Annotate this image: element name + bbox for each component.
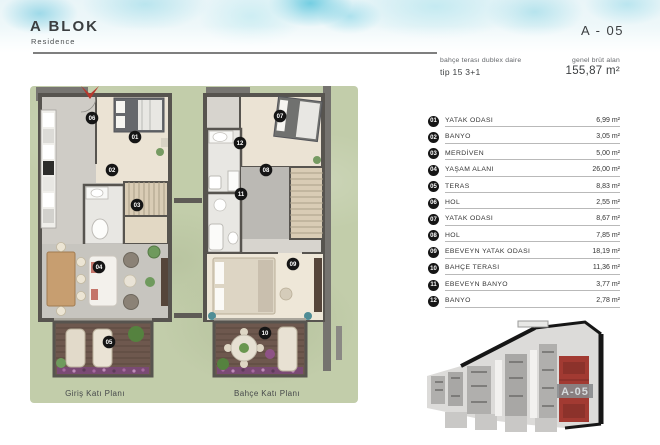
- unit-type-value: tip 15 3+1: [440, 67, 521, 77]
- room-number-badge: 08: [428, 230, 439, 241]
- highlighted-unit-a05: A-05: [557, 356, 593, 422]
- room-row: 10BAHÇE TERASI11,36 m²: [428, 261, 620, 277]
- svg-text:11: 11: [238, 192, 245, 198]
- room-name: YAŞAM ALANI: [445, 166, 494, 173]
- svg-text:03: 03: [134, 203, 141, 209]
- room-area: 2,55 m²: [596, 199, 620, 206]
- room-marker: 01: [129, 131, 142, 144]
- unit-info: bahçe terası dublex daire tip 15 3+1 gen…: [440, 57, 620, 77]
- room-marker: 09: [287, 258, 300, 271]
- room-area: 7,85 m²: [596, 232, 620, 239]
- room-marker: 10: [259, 327, 272, 340]
- caption-bahce-kati: Bahçe Katı Planı: [212, 389, 322, 398]
- room-name: YATAK ODASI: [445, 117, 493, 124]
- room-number-badge: 09: [428, 247, 439, 258]
- room-row: 06HOL2,55 m²: [428, 195, 620, 211]
- room-number-badge: 01: [428, 116, 439, 127]
- key-plan: A-05: [425, 312, 655, 440]
- room-area: 6,99 m²: [596, 117, 620, 124]
- svg-text:02: 02: [109, 168, 116, 174]
- svg-text:12: 12: [237, 141, 244, 147]
- room-row: 12BANYO2,78 m²: [428, 293, 620, 309]
- room-name: BANYO: [445, 297, 471, 304]
- room-name: TERAS: [445, 183, 470, 190]
- room-row: 02BANYO3,05 m²: [428, 129, 620, 145]
- unit-code: A - 05: [581, 23, 624, 38]
- floor-plan-giris-kati: [36, 86, 170, 376]
- room-name: YATAK ODASI: [445, 215, 493, 222]
- room-row: 01YATAK ODASI6,99 m²: [428, 113, 620, 129]
- room-name: HOL: [445, 232, 460, 239]
- room-area: 5,00 m²: [596, 150, 620, 157]
- room-row: 07YATAK ODASI8,67 m²: [428, 211, 620, 227]
- room-area: 2,78 m²: [596, 297, 620, 304]
- brochure-page: A BLOK Residence A - 05 bahçe terası dub…: [0, 0, 660, 445]
- gross-area-label: genel brüt alan: [566, 57, 620, 64]
- room-row: 11EBEVEYN BANYO3,77 m²: [428, 277, 620, 293]
- svg-text:01: 01: [132, 135, 139, 141]
- room-name: BANYO: [445, 133, 471, 140]
- svg-text:09: 09: [290, 262, 297, 268]
- room-marker: 04: [93, 261, 106, 274]
- svg-text:06: 06: [89, 116, 96, 122]
- room-name: EBEVEYN BANYO: [445, 281, 508, 288]
- caption-giris-kati: Giriş Katı Planı: [40, 389, 150, 398]
- room-marker: 05: [103, 336, 116, 349]
- room-marker: 08: [260, 164, 273, 177]
- watercolor-header-band: [0, 0, 660, 54]
- key-plan-drawing: A-05: [425, 312, 655, 440]
- svg-text:04: 04: [96, 265, 103, 271]
- room-row: 04YAŞAM ALANI26,00 m²: [428, 162, 620, 178]
- room-name: EBEVEYN YATAK ODASI: [445, 248, 530, 255]
- gross-area-value: 155,87 m²: [566, 65, 620, 77]
- room-area: 8,83 m²: [596, 183, 620, 190]
- room-number-badge: 04: [428, 165, 439, 176]
- room-marker: 11: [235, 188, 248, 201]
- room-number-badge: 06: [428, 198, 439, 209]
- svg-text:08: 08: [263, 168, 270, 174]
- floor-plans-canvas: 01 02 03 04 05 06 07 08 09 10 11 12: [30, 86, 358, 403]
- room-schedule: 01YATAK ODASI6,99 m² 02BANYO3,05 m² 03ME…: [428, 113, 620, 310]
- page-subtitle: Residence: [31, 37, 75, 46]
- room-number-badge: 03: [428, 148, 439, 159]
- room-name: MERDİVEN: [445, 150, 484, 157]
- room-marker: 07: [274, 110, 287, 123]
- header-divider: [33, 52, 437, 54]
- gross-area-info: genel brüt alan 155,87 m²: [566, 57, 620, 77]
- key-plan-unit-label: A-05: [561, 386, 589, 398]
- unit-type-info: bahçe terası dublex daire tip 15 3+1: [440, 57, 521, 77]
- room-name: BAHÇE TERASI: [445, 264, 500, 271]
- room-area: 11,36 m²: [593, 264, 620, 271]
- room-area: 3,77 m²: [596, 281, 620, 288]
- room-number-badge: 02: [428, 132, 439, 143]
- room-row: 03MERDİVEN5,00 m²: [428, 146, 620, 162]
- floor-plan-bahce-kati: [205, 86, 342, 376]
- room-number-badge: 11: [428, 280, 439, 291]
- room-area: 3,05 m²: [596, 133, 620, 140]
- room-marker: 06: [86, 112, 99, 125]
- room-area: 18,19 m²: [592, 248, 620, 255]
- room-row: 09EBEVEYN YATAK ODASI18,19 m²: [428, 244, 620, 260]
- room-row: 08HOL7,85 m²: [428, 228, 620, 244]
- room-number-badge: 10: [428, 263, 439, 274]
- room-row: 05TERAS8,83 m²: [428, 179, 620, 195]
- room-marker: 03: [131, 199, 144, 212]
- room-area: 8,67 m²: [596, 215, 620, 222]
- room-marker: 02: [106, 164, 119, 177]
- room-number-badge: 12: [428, 296, 439, 307]
- room-marker: 12: [234, 137, 247, 150]
- unit-type-label: bahçe terası dublex daire: [440, 57, 521, 64]
- svg-text:05: 05: [106, 340, 113, 346]
- room-name: HOL: [445, 199, 460, 206]
- room-number-badge: 05: [428, 181, 439, 192]
- floor-plans-drawing: 01 02 03 04 05 06 07 08 09 10 11 12: [30, 86, 358, 403]
- room-number-badge: 07: [428, 214, 439, 225]
- page-title: A BLOK: [30, 18, 99, 35]
- svg-text:10: 10: [262, 331, 269, 337]
- svg-text:07: 07: [277, 114, 284, 120]
- room-area: 26,00 m²: [592, 166, 620, 173]
